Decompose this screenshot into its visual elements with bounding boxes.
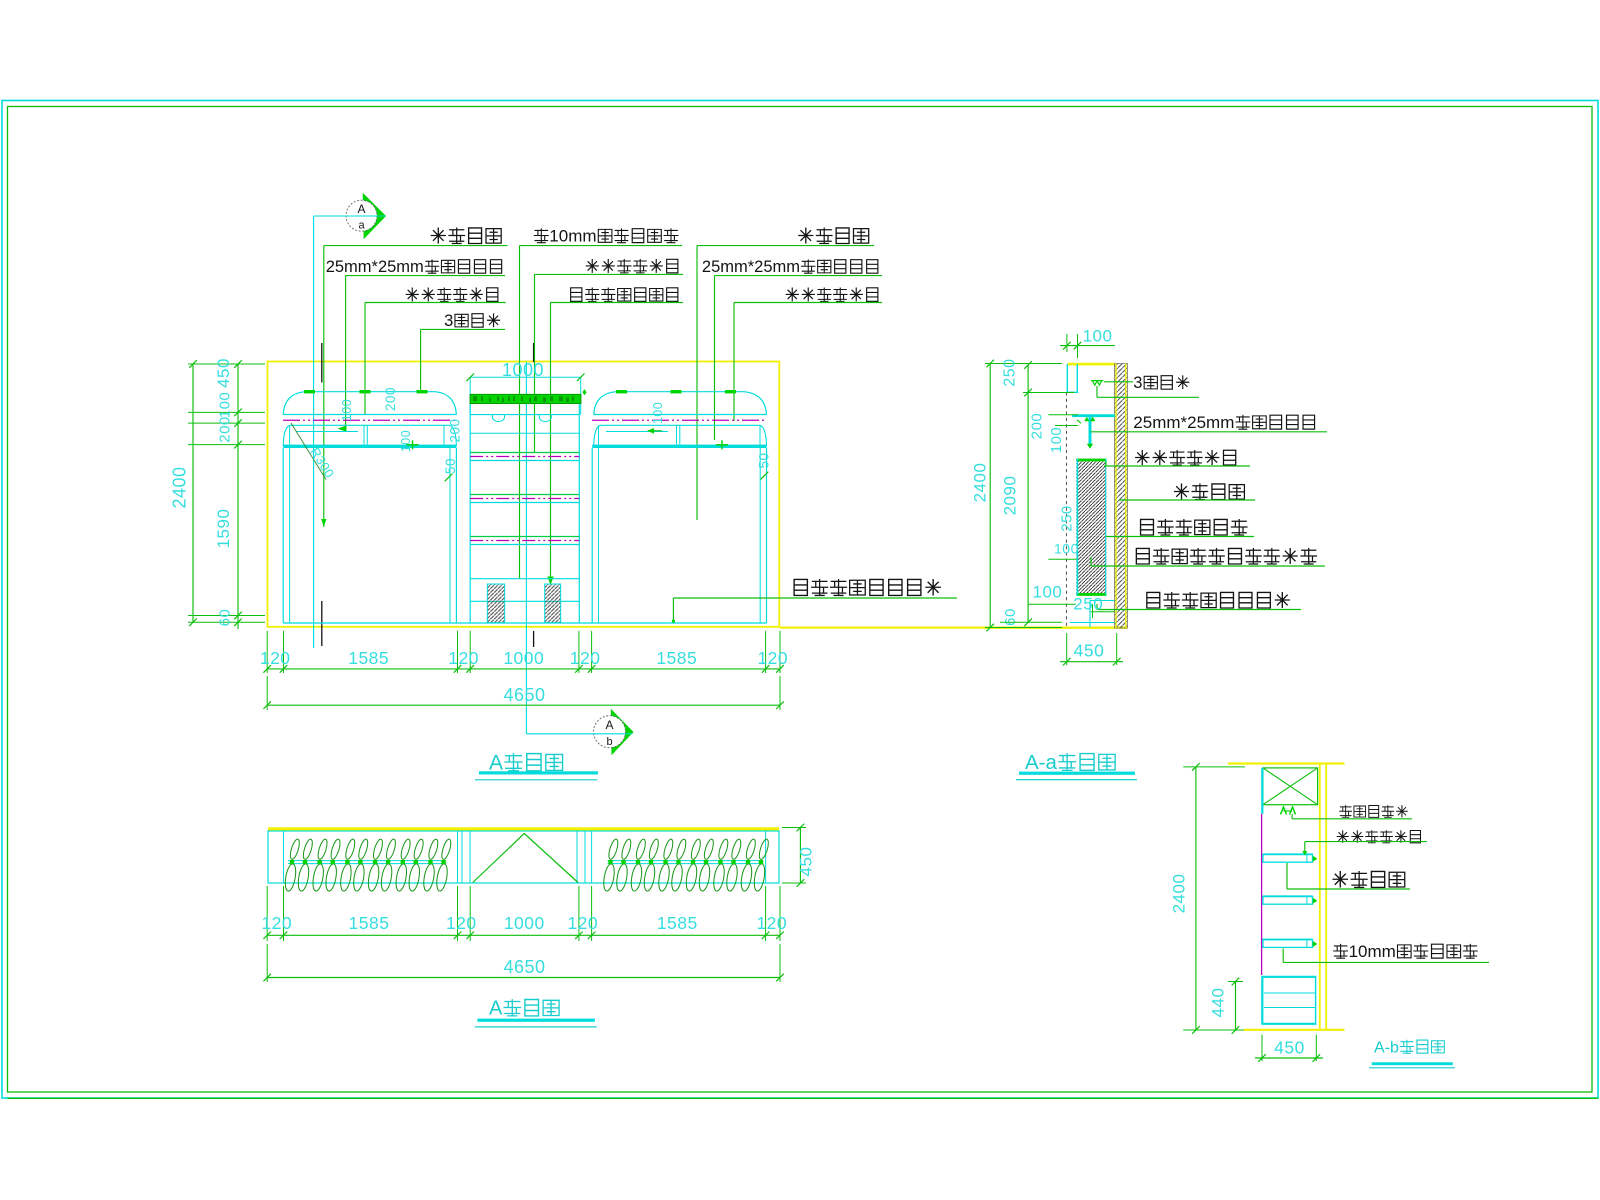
svg-text:3: 3 [444, 312, 453, 330]
svg-text:100: 100 [651, 402, 665, 424]
svg-text:100: 100 [399, 430, 413, 452]
svg-text:1590: 1590 [214, 509, 233, 549]
svg-text:1000: 1000 [503, 648, 544, 668]
svg-text:25mm*25mm: 25mm*25mm [702, 258, 800, 276]
svg-text:200: 200 [1029, 413, 1046, 440]
svg-text:4650: 4650 [503, 685, 545, 705]
svg-text:60: 60 [217, 609, 234, 627]
svg-text:100: 100 [217, 392, 234, 419]
svg-text:1585: 1585 [656, 648, 697, 668]
svg-text:450: 450 [797, 847, 816, 877]
svg-text:100: 100 [1054, 541, 1079, 557]
svg-text:A: A [605, 718, 613, 732]
svg-text:120: 120 [260, 648, 291, 668]
svg-text:200: 200 [448, 418, 463, 442]
svg-text:A: A [357, 202, 365, 216]
svg-text:120: 120 [570, 648, 601, 668]
svg-text:2400: 2400 [1170, 874, 1189, 914]
svg-text:4650: 4650 [503, 957, 545, 977]
svg-text:100: 100 [1048, 427, 1065, 454]
svg-text:450: 450 [214, 358, 233, 388]
svg-text:60: 60 [1002, 608, 1019, 626]
svg-text:50: 50 [443, 458, 458, 474]
svg-text:2400: 2400 [170, 466, 190, 508]
svg-text:250: 250 [1073, 595, 1103, 614]
svg-text:3: 3 [1133, 374, 1142, 392]
svg-text:120: 120 [757, 648, 788, 668]
svg-text:25mm*25mm: 25mm*25mm [1133, 413, 1234, 432]
svg-text:A-a: A-a [1025, 751, 1058, 774]
svg-text:b: b [606, 736, 612, 748]
svg-text:120: 120 [446, 913, 477, 933]
svg-text:120: 120 [756, 913, 787, 933]
svg-text:120: 120 [261, 913, 292, 933]
svg-text:10mm: 10mm [1349, 942, 1396, 961]
svg-text:450: 450 [1074, 641, 1105, 661]
svg-text:1000: 1000 [502, 360, 544, 380]
svg-text:2090: 2090 [1001, 476, 1020, 516]
svg-text:100: 100 [1033, 583, 1063, 602]
svg-text:100: 100 [340, 399, 354, 421]
svg-text:10mm: 10mm [549, 227, 596, 246]
svg-text:25mm*25mm: 25mm*25mm [326, 258, 424, 276]
svg-text:a: a [358, 220, 365, 232]
svg-text:250: 250 [1059, 505, 1076, 532]
svg-text:1585: 1585 [657, 913, 698, 933]
svg-text:1585: 1585 [349, 913, 390, 933]
svg-text:200: 200 [383, 387, 398, 411]
svg-text:440: 440 [1209, 988, 1228, 1018]
svg-text:200: 200 [217, 416, 234, 443]
svg-text:1000: 1000 [504, 913, 545, 933]
svg-text:250: 250 [1002, 358, 1019, 386]
svg-text:A: A [489, 998, 503, 1020]
svg-text:120: 120 [448, 648, 479, 668]
svg-text:100: 100 [1083, 327, 1113, 346]
svg-text:120: 120 [567, 913, 598, 933]
svg-text:1585: 1585 [348, 648, 389, 668]
svg-text:2400: 2400 [971, 463, 990, 503]
svg-text:A: A [489, 752, 503, 775]
svg-text:R300: R300 [307, 445, 337, 481]
svg-text:50: 50 [757, 452, 772, 468]
svg-text:450: 450 [1274, 1038, 1305, 1058]
svg-text:A-b: A-b [1374, 1039, 1399, 1056]
